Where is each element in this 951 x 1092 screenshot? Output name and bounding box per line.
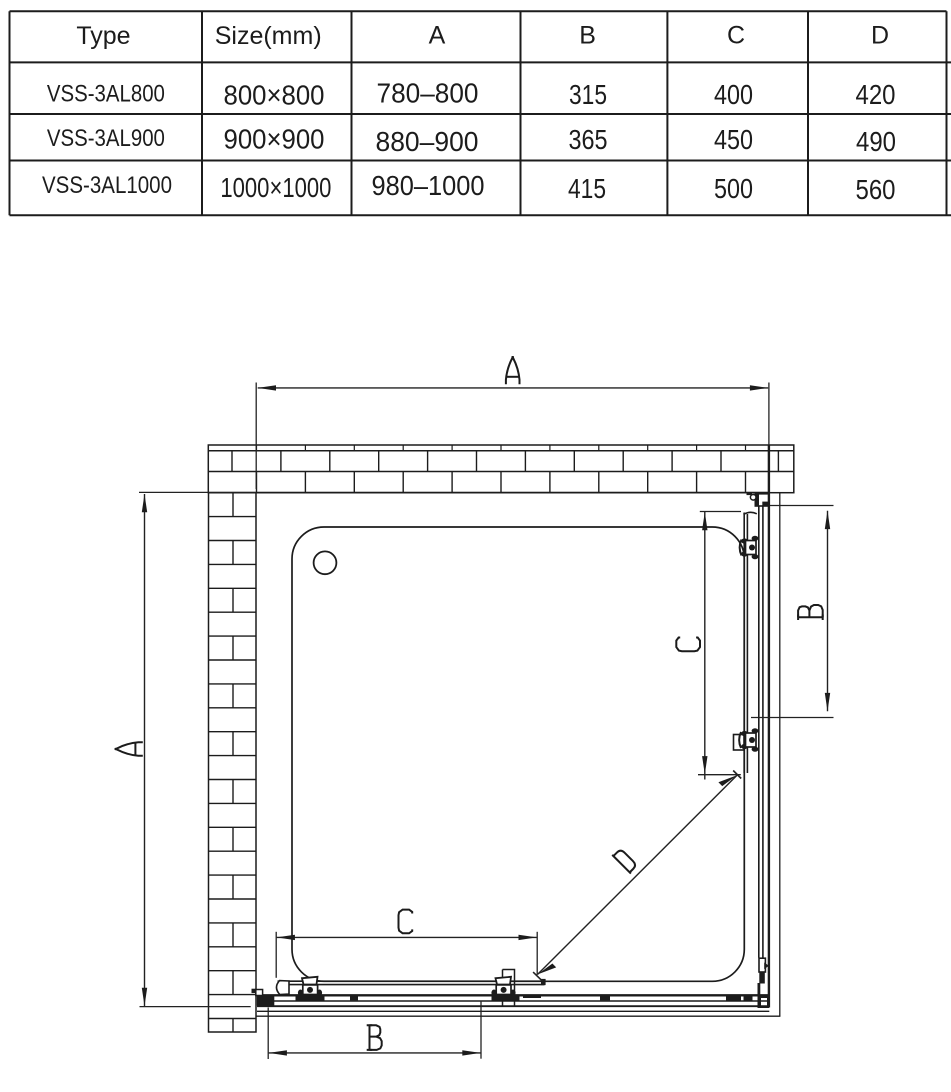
svg-text:560: 560 — [856, 174, 896, 205]
svg-text:365: 365 — [569, 124, 608, 155]
svg-text:490: 490 — [856, 126, 896, 157]
svg-text:500: 500 — [714, 173, 753, 204]
svg-text:800×800: 800×800 — [224, 80, 325, 111]
svg-text:D: D — [871, 22, 889, 50]
svg-text:VSS-3AL900: VSS-3AL900 — [47, 125, 165, 152]
svg-text:420: 420 — [856, 79, 896, 110]
svg-text:780–800: 780–800 — [377, 78, 479, 109]
svg-text:C: C — [727, 22, 745, 50]
svg-text:880–900: 880–900 — [376, 126, 479, 157]
svg-text:A: A — [429, 22, 446, 50]
svg-text:980–1000: 980–1000 — [372, 170, 485, 201]
svg-text:450: 450 — [714, 124, 753, 155]
svg-text:415: 415 — [568, 173, 606, 204]
svg-text:900×900: 900×900 — [224, 124, 325, 155]
svg-text:315: 315 — [569, 79, 607, 110]
svg-text:VSS-3AL1000: VSS-3AL1000 — [42, 172, 172, 199]
svg-text:VSS-3AL800: VSS-3AL800 — [47, 81, 165, 108]
svg-text:1000×1000: 1000×1000 — [220, 172, 331, 203]
svg-text:400: 400 — [714, 79, 753, 110]
svg-text:B: B — [579, 22, 596, 50]
svg-text:Type: Type — [76, 22, 130, 50]
svg-text:Size(mm): Size(mm) — [215, 22, 322, 50]
